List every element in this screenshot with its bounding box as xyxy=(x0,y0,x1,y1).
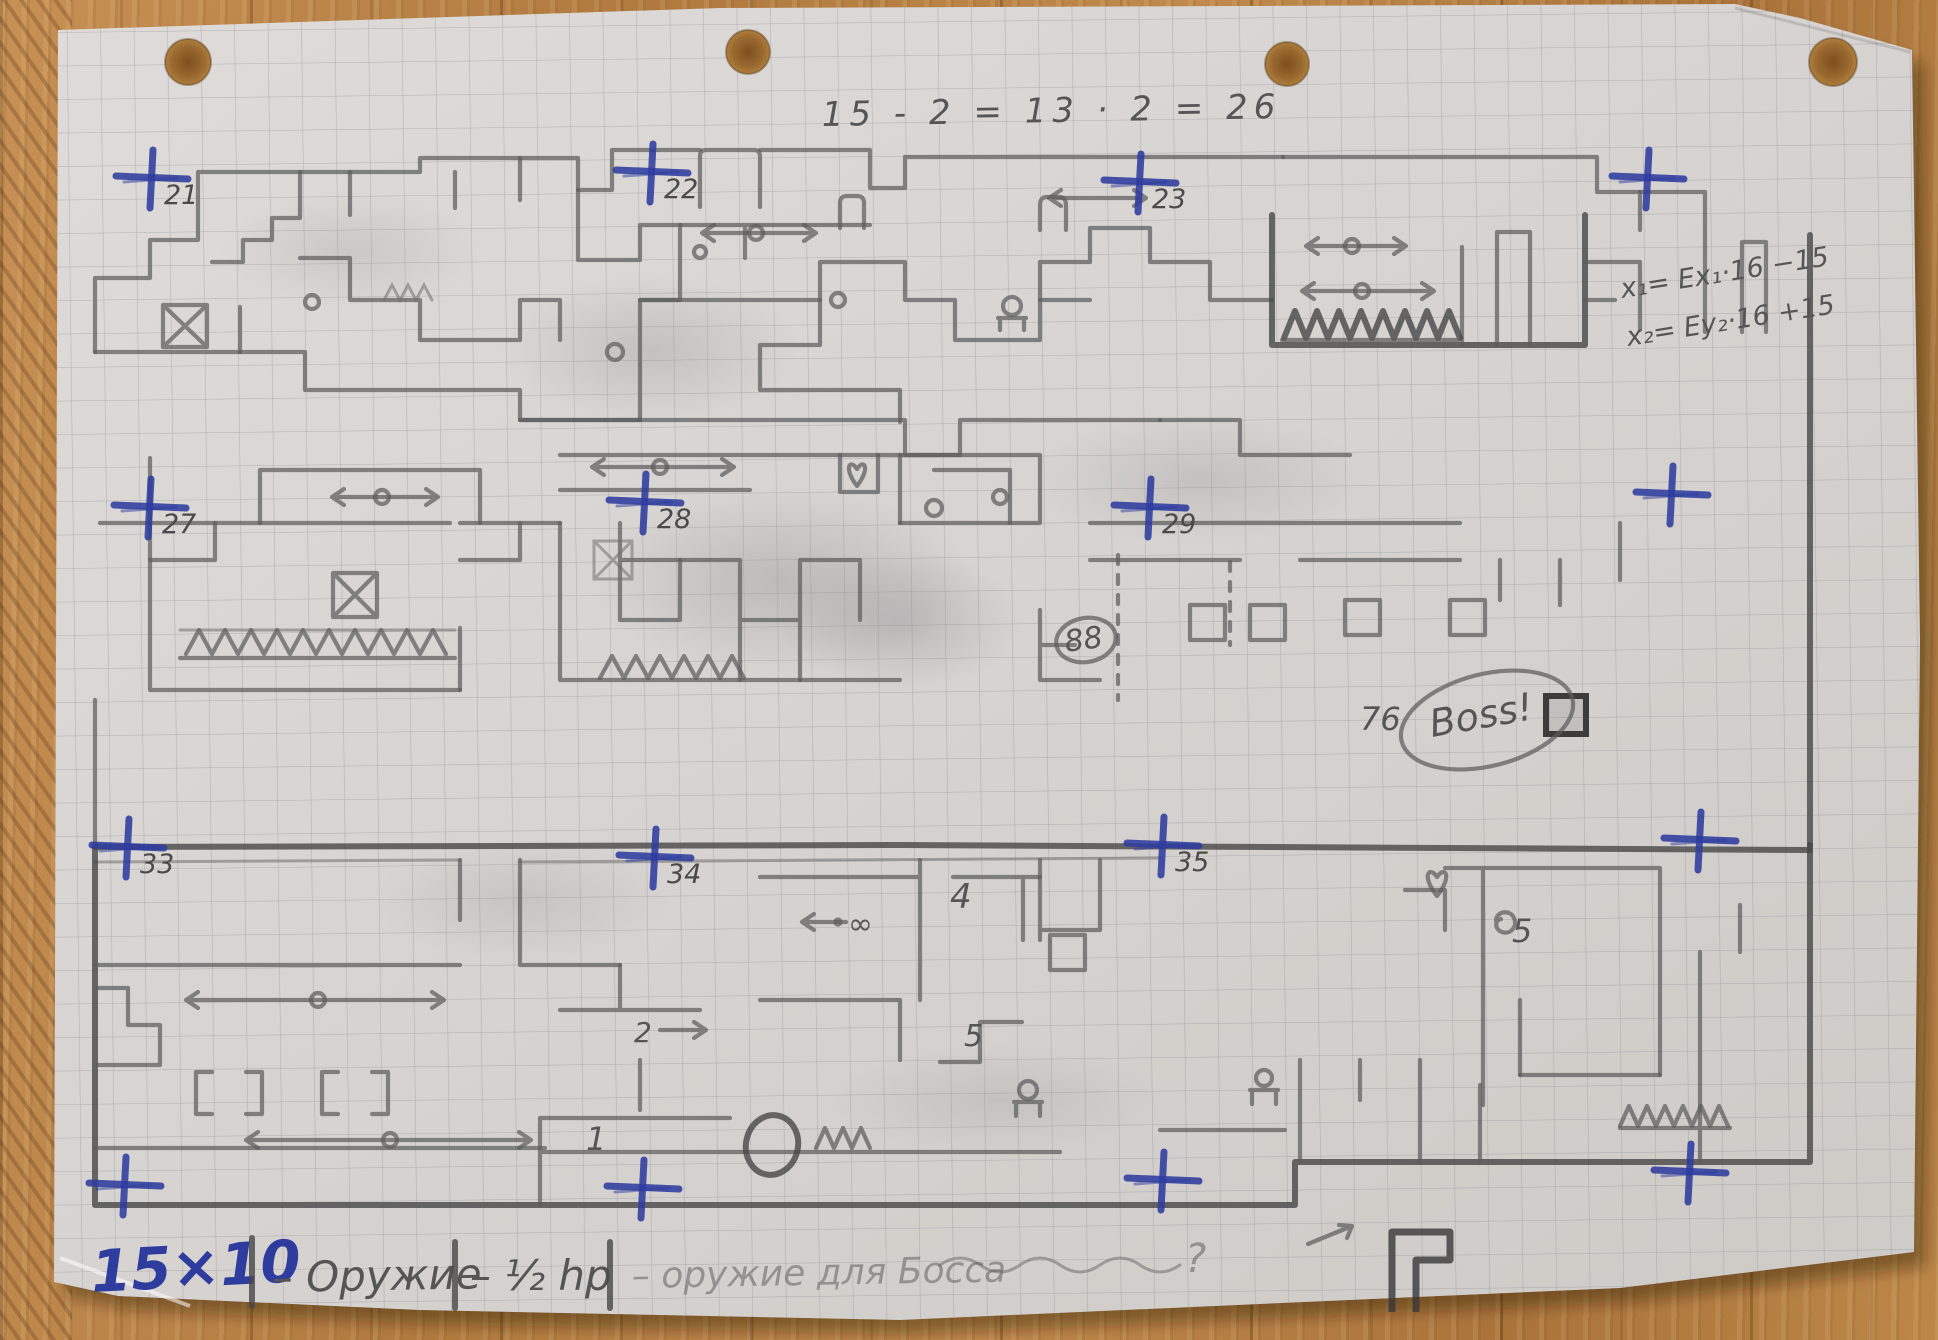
room-number-5: 5 xyxy=(964,1019,983,1054)
punch-hole xyxy=(726,30,770,74)
punch-hole xyxy=(165,39,211,85)
grid-marker-label: 34 xyxy=(667,859,701,890)
grid-marker-label: 28 xyxy=(657,504,691,535)
equation-text: 15 - 2 = 13 · 2 = 26 xyxy=(821,87,1281,135)
punch-hole xyxy=(1265,42,1309,86)
grid-marker-label: 35 xyxy=(1175,847,1209,878)
legend-size-label: 15×10 xyxy=(89,1227,302,1306)
grid-marker-label: 33 xyxy=(140,849,174,880)
legend-item-weapon: – Оружие xyxy=(271,1249,482,1302)
legend-item-hp: – ½ hp xyxy=(470,1251,612,1300)
grid-marker-label: 21 xyxy=(164,180,198,211)
grid-marker-label: 23 xyxy=(1152,184,1186,215)
room-number-1: 1 xyxy=(586,1120,606,1158)
num88-label: 88 xyxy=(1062,620,1105,660)
room-number-4: 4 xyxy=(950,877,972,917)
grid-marker-label: 29 xyxy=(1162,509,1196,540)
room-number-2: 2 xyxy=(634,1016,652,1049)
num76-label: 76 xyxy=(1360,700,1401,738)
grid-marker-label: 27 xyxy=(162,509,196,540)
scene-svg: 212223272829333435 15 - 2 = 13 · 2 = 26 … xyxy=(0,0,1938,1340)
spiral-number-5: 5 xyxy=(1512,912,1532,950)
legend-item-boss-weapon: – оружие для Босса xyxy=(631,1249,1006,1297)
legend-question-mark: ? xyxy=(1185,1236,1206,1282)
dark-square xyxy=(1546,696,1586,734)
punch-hole xyxy=(1809,38,1857,86)
grid-marker-label: 22 xyxy=(664,174,698,205)
infinity-symbol: ∞ xyxy=(848,907,873,942)
